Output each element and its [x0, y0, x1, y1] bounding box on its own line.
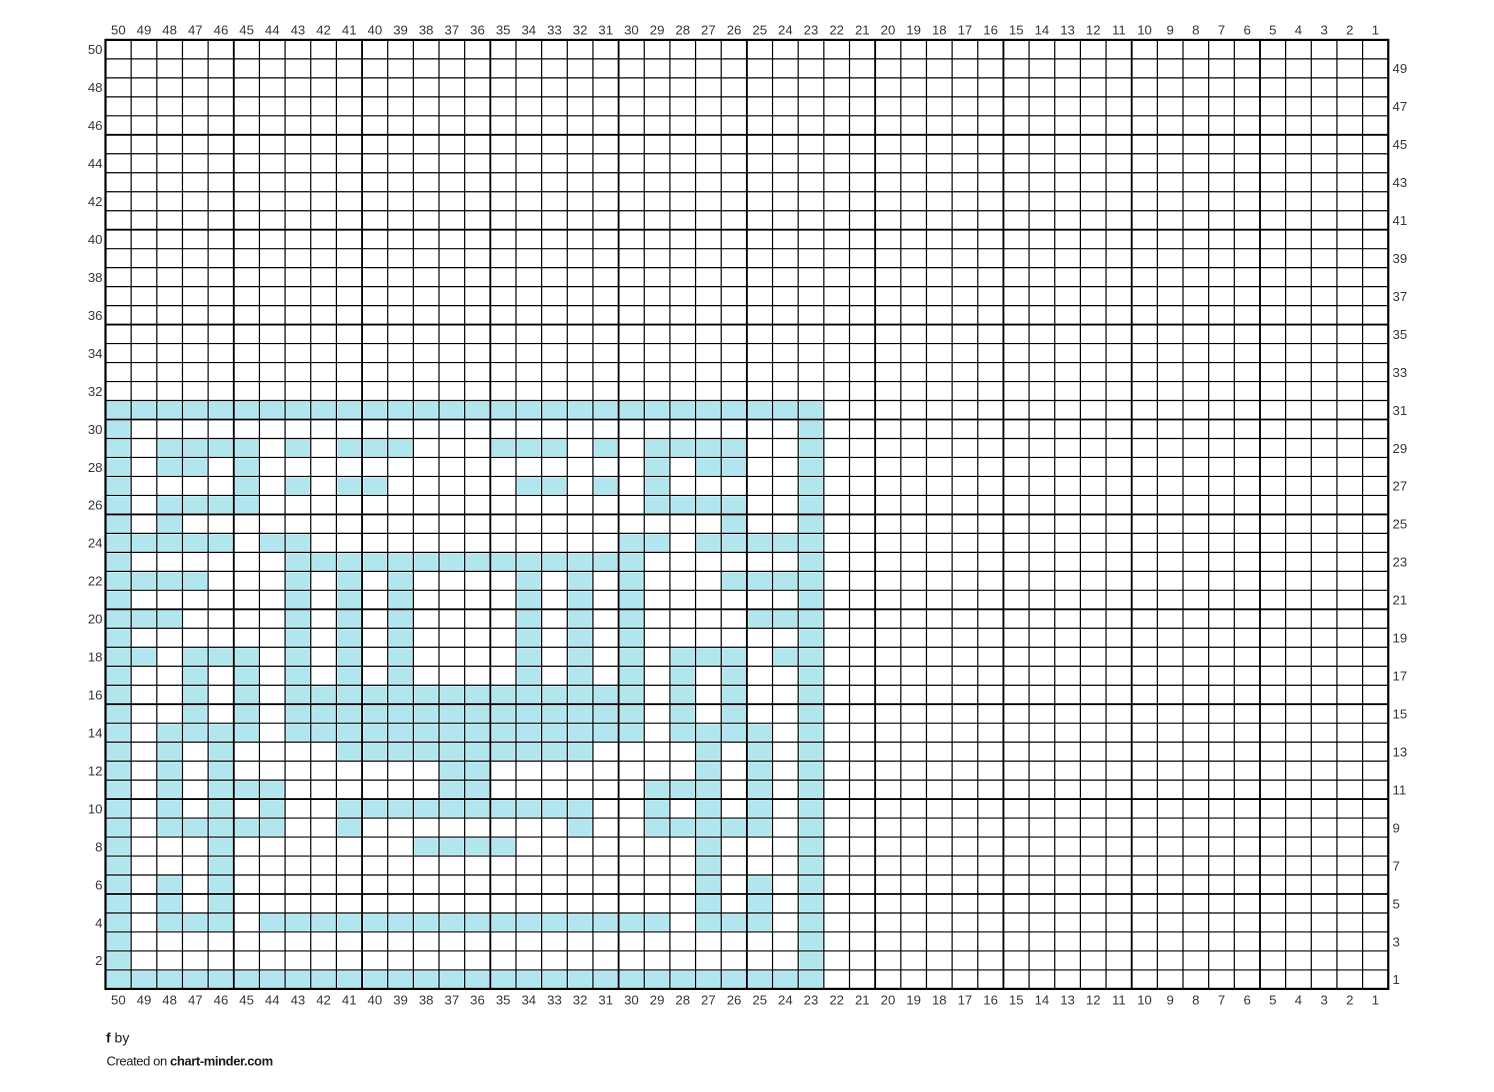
- svg-text:13: 13: [1060, 23, 1075, 38]
- svg-text:3: 3: [1393, 934, 1400, 949]
- svg-text:25: 25: [752, 23, 767, 38]
- svg-text:44: 44: [88, 156, 103, 171]
- svg-text:1: 1: [1393, 972, 1400, 987]
- svg-text:28: 28: [675, 992, 690, 1007]
- svg-text:36: 36: [88, 308, 103, 323]
- svg-text:Created on chart-minder.com: Created on chart-minder.com: [107, 1054, 273, 1069]
- svg-text:50: 50: [88, 42, 103, 57]
- svg-text:35: 35: [1393, 327, 1408, 342]
- svg-text:37: 37: [445, 23, 460, 38]
- svg-text:36: 36: [470, 992, 485, 1007]
- svg-text:4: 4: [95, 915, 102, 930]
- svg-text:13: 13: [1393, 744, 1408, 759]
- svg-text:41: 41: [1393, 213, 1408, 228]
- svg-text:46: 46: [88, 118, 103, 133]
- svg-text:21: 21: [855, 992, 870, 1007]
- svg-text:26: 26: [88, 498, 103, 513]
- svg-text:22: 22: [829, 23, 844, 38]
- svg-text:23: 23: [1393, 555, 1408, 570]
- svg-text:41: 41: [342, 23, 357, 38]
- svg-text:9: 9: [1167, 23, 1174, 38]
- svg-text:40: 40: [368, 992, 383, 1007]
- svg-text:49: 49: [137, 992, 152, 1007]
- svg-text:43: 43: [1393, 175, 1408, 190]
- svg-text:16: 16: [88, 688, 103, 703]
- svg-text:31: 31: [1393, 403, 1408, 418]
- svg-text:24: 24: [778, 23, 793, 38]
- svg-text:42: 42: [88, 194, 103, 209]
- svg-text:25: 25: [1393, 517, 1408, 532]
- svg-text:3: 3: [1320, 23, 1327, 38]
- svg-text:4: 4: [1295, 23, 1302, 38]
- svg-text:47: 47: [188, 992, 203, 1007]
- svg-text:7: 7: [1393, 858, 1400, 873]
- svg-text:34: 34: [88, 346, 103, 361]
- svg-text:39: 39: [1393, 251, 1408, 266]
- svg-text:22: 22: [829, 992, 844, 1007]
- svg-text:11: 11: [1393, 782, 1407, 797]
- svg-text:6: 6: [1243, 23, 1250, 38]
- svg-text:40: 40: [368, 23, 383, 38]
- svg-text:23: 23: [804, 992, 819, 1007]
- svg-text:33: 33: [547, 23, 562, 38]
- svg-text:46: 46: [214, 992, 229, 1007]
- svg-text:48: 48: [162, 23, 177, 38]
- svg-text:25: 25: [752, 992, 767, 1007]
- svg-text:28: 28: [88, 460, 103, 475]
- svg-text:3: 3: [1320, 992, 1327, 1007]
- svg-text:27: 27: [701, 23, 716, 38]
- svg-text:9: 9: [1167, 992, 1174, 1007]
- svg-text:27: 27: [701, 992, 716, 1007]
- svg-text:32: 32: [573, 23, 588, 38]
- svg-text:40: 40: [88, 232, 103, 247]
- svg-text:16: 16: [983, 23, 998, 38]
- svg-text:24: 24: [778, 992, 793, 1007]
- svg-text:36: 36: [470, 23, 485, 38]
- svg-text:23: 23: [804, 23, 819, 38]
- svg-text:10: 10: [1137, 23, 1152, 38]
- svg-text:45: 45: [239, 23, 254, 38]
- svg-text:29: 29: [650, 23, 665, 38]
- svg-text:18: 18: [932, 992, 947, 1007]
- svg-text:21: 21: [855, 23, 870, 38]
- svg-text:18: 18: [932, 23, 947, 38]
- svg-text:38: 38: [88, 270, 103, 285]
- svg-text:14: 14: [1035, 992, 1050, 1007]
- svg-text:29: 29: [650, 992, 665, 1007]
- svg-text:48: 48: [88, 80, 103, 95]
- svg-text:21: 21: [1393, 593, 1408, 608]
- svg-text:12: 12: [1086, 23, 1101, 38]
- svg-text:30: 30: [624, 23, 639, 38]
- svg-text:7: 7: [1218, 992, 1225, 1007]
- svg-text:5: 5: [1269, 23, 1276, 38]
- svg-text:1: 1: [1372, 992, 1379, 1007]
- svg-text:17: 17: [958, 23, 973, 38]
- svg-text:35: 35: [496, 992, 511, 1007]
- svg-text:4: 4: [1295, 992, 1302, 1007]
- svg-text:43: 43: [291, 23, 306, 38]
- svg-text:9: 9: [1393, 820, 1400, 835]
- svg-text:31: 31: [598, 23, 613, 38]
- svg-text:2: 2: [1346, 23, 1353, 38]
- svg-text:39: 39: [393, 992, 408, 1007]
- svg-text:33: 33: [547, 992, 562, 1007]
- svg-text:12: 12: [88, 763, 103, 778]
- svg-text:50: 50: [111, 23, 126, 38]
- svg-text:42: 42: [316, 23, 331, 38]
- svg-text:20: 20: [88, 612, 103, 627]
- svg-text:38: 38: [419, 23, 434, 38]
- svg-text:47: 47: [1393, 99, 1408, 114]
- svg-text:19: 19: [906, 23, 921, 38]
- svg-text:28: 28: [675, 23, 690, 38]
- svg-text:26: 26: [727, 992, 742, 1007]
- svg-text:8: 8: [95, 839, 102, 854]
- svg-text:11: 11: [1112, 992, 1126, 1007]
- svg-text:16: 16: [983, 992, 998, 1007]
- svg-text:15: 15: [1009, 992, 1024, 1007]
- svg-text:48: 48: [162, 992, 177, 1007]
- svg-text:45: 45: [239, 992, 254, 1007]
- svg-text:50: 50: [111, 992, 126, 1007]
- svg-text:17: 17: [1393, 669, 1408, 684]
- svg-text:11: 11: [1112, 23, 1126, 38]
- svg-text:27: 27: [1393, 479, 1408, 494]
- svg-text:32: 32: [573, 992, 588, 1007]
- svg-text:2: 2: [1346, 992, 1353, 1007]
- svg-text:31: 31: [598, 992, 613, 1007]
- svg-text:14: 14: [1035, 23, 1050, 38]
- svg-text:15: 15: [1393, 706, 1408, 721]
- svg-text:19: 19: [906, 992, 921, 1007]
- svg-text:19: 19: [1393, 631, 1408, 646]
- svg-text:22: 22: [88, 574, 103, 589]
- svg-text:20: 20: [881, 23, 896, 38]
- svg-text:8: 8: [1192, 992, 1199, 1007]
- svg-text:44: 44: [265, 23, 280, 38]
- svg-text:46: 46: [214, 23, 229, 38]
- svg-text:32: 32: [88, 384, 103, 399]
- svg-text:29: 29: [1393, 441, 1408, 456]
- svg-text:2: 2: [95, 953, 102, 968]
- svg-text:34: 34: [521, 23, 536, 38]
- svg-text:37: 37: [1393, 289, 1408, 304]
- svg-text:15: 15: [1009, 23, 1024, 38]
- svg-text:42: 42: [316, 992, 331, 1007]
- svg-text:7: 7: [1218, 23, 1225, 38]
- svg-text:6: 6: [1243, 992, 1250, 1007]
- svg-text:49: 49: [137, 23, 152, 38]
- svg-text:6: 6: [95, 877, 102, 892]
- svg-text:14: 14: [88, 725, 103, 740]
- svg-text:26: 26: [727, 23, 742, 38]
- svg-text:17: 17: [958, 992, 973, 1007]
- svg-text:43: 43: [291, 992, 306, 1007]
- svg-text:45: 45: [1393, 137, 1408, 152]
- svg-text:13: 13: [1060, 992, 1075, 1007]
- svg-text:10: 10: [1137, 992, 1152, 1007]
- svg-text:1: 1: [1372, 23, 1379, 38]
- svg-text:47: 47: [188, 23, 203, 38]
- svg-text:5: 5: [1269, 992, 1276, 1007]
- svg-text:30: 30: [624, 992, 639, 1007]
- svg-text:33: 33: [1393, 365, 1408, 380]
- svg-text:30: 30: [88, 422, 103, 437]
- svg-text:10: 10: [88, 801, 103, 816]
- svg-text:f by: f by: [106, 1030, 129, 1046]
- svg-text:8: 8: [1192, 23, 1199, 38]
- svg-text:44: 44: [265, 992, 280, 1007]
- svg-text:12: 12: [1086, 992, 1101, 1007]
- svg-text:34: 34: [521, 992, 536, 1007]
- svg-text:5: 5: [1393, 896, 1400, 911]
- svg-text:20: 20: [881, 992, 896, 1007]
- svg-text:41: 41: [342, 992, 357, 1007]
- svg-text:18: 18: [88, 650, 103, 665]
- svg-text:38: 38: [419, 992, 434, 1007]
- svg-text:35: 35: [496, 23, 511, 38]
- svg-text:37: 37: [445, 992, 460, 1007]
- svg-text:49: 49: [1393, 61, 1408, 76]
- svg-text:39: 39: [393, 23, 408, 38]
- svg-text:24: 24: [88, 536, 103, 551]
